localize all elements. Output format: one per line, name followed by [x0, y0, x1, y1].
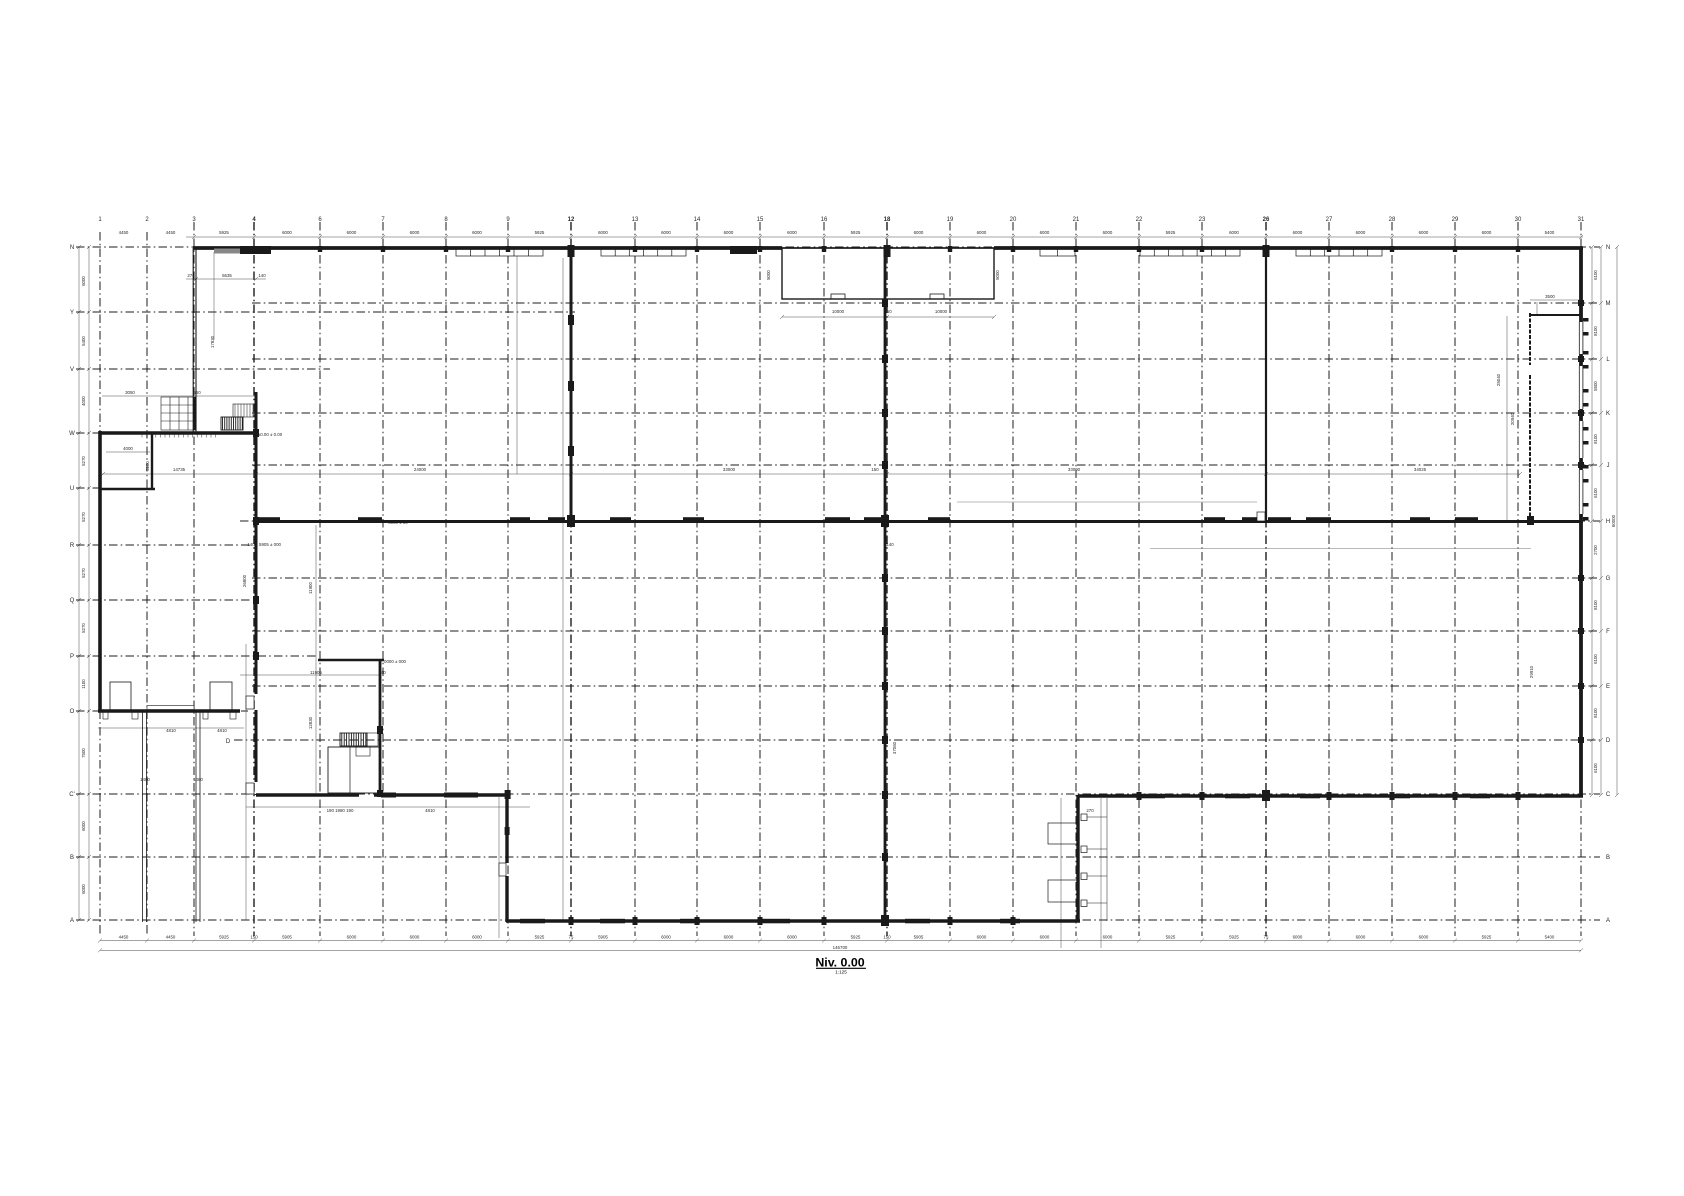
svg-text:E: E — [1606, 684, 1610, 690]
svg-text:4810: 4810 — [425, 808, 435, 813]
svg-text:22: 22 — [1136, 217, 1143, 223]
svg-text:150: 150 — [871, 467, 879, 472]
svg-text:1480: 1480 — [140, 777, 150, 782]
svg-text:6000: 6000 — [472, 230, 482, 235]
svg-text:6000: 6000 — [410, 230, 420, 235]
svg-text:5400: 5400 — [1545, 230, 1555, 235]
svg-text:4450: 4450 — [166, 230, 176, 235]
svg-text:7500: 7500 — [81, 748, 86, 758]
svg-text:29: 29 — [1452, 217, 1459, 223]
svg-text:26800: 26800 — [242, 574, 247, 587]
svg-text:6000: 6000 — [81, 821, 86, 831]
svg-text:1100: 1100 — [81, 679, 86, 689]
svg-text:75: 75 — [1264, 935, 1269, 940]
svg-text:28: 28 — [1389, 217, 1396, 223]
svg-text:5100: 5100 — [145, 461, 150, 471]
svg-text:11905: 11905 — [310, 670, 322, 675]
svg-text:5000: 5000 — [995, 270, 1000, 280]
svg-text:6000: 6000 — [1229, 230, 1239, 235]
svg-text:6000: 6000 — [1482, 230, 1492, 235]
svg-text:3050: 3050 — [125, 390, 135, 395]
svg-text:33000: 33000 — [723, 467, 736, 472]
svg-text:4810: 4810 — [217, 728, 227, 733]
svg-text:14: 14 — [694, 217, 701, 223]
svg-text:4450: 4450 — [119, 230, 129, 235]
svg-text:6000: 6000 — [410, 935, 420, 940]
svg-text:5905: 5905 — [914, 935, 924, 940]
svg-text:15: 15 — [757, 217, 764, 223]
svg-text:6000: 6000 — [1040, 230, 1050, 235]
svg-text:D: D — [226, 739, 231, 745]
svg-text:C': C' — [69, 792, 74, 798]
svg-text:1480: 1480 — [193, 777, 203, 782]
svg-text:Q: Q — [70, 598, 75, 604]
svg-text:N: N — [1606, 245, 1610, 251]
svg-text:8100: 8100 — [1593, 708, 1598, 718]
svg-text:18: 18 — [884, 217, 891, 223]
svg-text:N: N — [70, 245, 74, 251]
svg-text:6000: 6000 — [914, 230, 924, 235]
svg-text:270: 270 — [1086, 808, 1094, 813]
svg-text:6100: 6100 — [1593, 270, 1598, 280]
svg-text:5270: 5270 — [81, 512, 86, 522]
svg-text:6000: 6000 — [347, 230, 357, 235]
svg-text:13: 13 — [632, 217, 639, 223]
svg-text:2700: 2700 — [1593, 545, 1598, 555]
svg-text:6000: 6000 — [1103, 230, 1113, 235]
svg-text:4000: 4000 — [81, 396, 86, 406]
svg-text:23: 23 — [1199, 217, 1206, 223]
svg-text:5925: 5925 — [851, 935, 861, 940]
svg-text:60000: 60000 — [1611, 514, 1616, 527]
svg-text:4450: 4450 — [166, 935, 176, 940]
svg-text:M: M — [1606, 301, 1611, 307]
svg-text:6000: 6000 — [1356, 230, 1366, 235]
svg-text:146700: 146700 — [833, 945, 848, 950]
svg-text:5270: 5270 — [81, 568, 86, 578]
svg-text:6000: 6000 — [977, 935, 987, 940]
svg-text:6000: 6000 — [282, 230, 292, 235]
svg-text:G: G — [1606, 576, 1611, 582]
svg-text:20: 20 — [1010, 217, 1017, 223]
svg-text:R: R — [70, 543, 75, 549]
svg-text:6000: 6000 — [787, 935, 797, 940]
svg-text:J: J — [1607, 463, 1610, 469]
svg-text:K: K — [1606, 411, 1610, 417]
svg-text:6000: 6000 — [724, 230, 734, 235]
svg-text:D: D — [1606, 738, 1611, 744]
svg-text:17830: 17830 — [210, 335, 215, 348]
svg-text:660: 660 — [193, 390, 201, 395]
svg-text:A: A — [1606, 918, 1610, 924]
svg-text:5925: 5925 — [535, 230, 545, 235]
svg-text:6000: 6000 — [787, 230, 797, 235]
svg-text:5905: 5905 — [282, 935, 292, 940]
svg-text:4810: 4810 — [166, 728, 176, 733]
svg-text:5000: 5000 — [766, 270, 771, 280]
svg-text:5905 ± 000: 5905 ± 000 — [259, 542, 282, 547]
svg-text:10000: 10000 — [832, 309, 845, 314]
svg-text:12: 12 — [568, 217, 575, 223]
svg-text:6000: 6000 — [661, 230, 671, 235]
svg-text:F: F — [1606, 629, 1610, 635]
svg-text:6000: 6000 — [724, 935, 734, 940]
svg-text:1:125: 1:125 — [835, 970, 847, 975]
svg-text:Niv. 0.00: Niv. 0.00 — [815, 956, 864, 970]
svg-text:31: 31 — [1578, 217, 1585, 223]
svg-text:±0.00 ± 0.00: ±0.00 ± 0.00 — [258, 432, 283, 437]
svg-text:30: 30 — [1515, 217, 1522, 223]
svg-text:270: 270 — [187, 273, 195, 278]
svg-text:5400: 5400 — [81, 336, 86, 346]
svg-text:6000: 6000 — [598, 230, 608, 235]
svg-text:140: 140 — [258, 273, 266, 278]
svg-text:25040: 25040 — [1496, 373, 1501, 386]
svg-text:4450: 4450 — [119, 935, 129, 940]
svg-text:140: 140 — [247, 542, 255, 547]
svg-text:6000: 6000 — [977, 230, 987, 235]
svg-text:P: P — [70, 654, 74, 660]
svg-text:6100: 6100 — [1593, 763, 1598, 773]
svg-text:150: 150 — [883, 935, 891, 940]
svg-text:W: W — [69, 431, 75, 437]
svg-text:5905: 5905 — [598, 935, 608, 940]
svg-text:20940: 20940 — [1510, 412, 1515, 425]
svg-text:B: B — [70, 855, 74, 861]
svg-text:6100: 6100 — [1593, 654, 1598, 664]
svg-text:5635: 5635 — [222, 273, 232, 278]
svg-text:5925: 5925 — [219, 230, 229, 235]
svg-text:C: C — [1606, 792, 1611, 798]
svg-text:B: B — [1606, 855, 1610, 861]
svg-text:6000: 6000 — [472, 935, 482, 940]
svg-text:5925: 5925 — [851, 230, 861, 235]
svg-text:5400: 5400 — [1545, 935, 1555, 940]
svg-text:5925: 5925 — [1482, 935, 1492, 940]
svg-text:5925: 5925 — [1166, 230, 1176, 235]
svg-text:33000: 33000 — [1068, 467, 1081, 472]
svg-text:6000: 6000 — [1356, 935, 1366, 940]
svg-text:6000: 6000 — [1103, 935, 1113, 940]
svg-text:3500: 3500 — [1545, 294, 1555, 299]
svg-text:6000: 6000 — [1419, 230, 1429, 235]
svg-text:8100: 8100 — [1593, 600, 1598, 610]
svg-text:0000 ± 000: 0000 ± 000 — [384, 659, 407, 664]
svg-text:16: 16 — [821, 217, 828, 223]
svg-text:4000: 4000 — [123, 446, 133, 451]
svg-text:24000: 24000 — [414, 467, 427, 472]
svg-text:6000: 6000 — [81, 276, 86, 286]
svg-text:8100: 8100 — [1593, 434, 1598, 444]
svg-text:27: 27 — [1326, 217, 1333, 223]
svg-text:8100: 8100 — [1593, 326, 1598, 336]
svg-text:75: 75 — [569, 935, 574, 940]
svg-text:5270: 5270 — [81, 456, 86, 466]
svg-text:5925: 5925 — [219, 935, 229, 940]
svg-text:Y: Y — [70, 310, 74, 316]
svg-text:H: H — [1606, 519, 1610, 525]
svg-text:14735: 14735 — [173, 467, 186, 472]
svg-text:O: O — [70, 709, 75, 715]
svg-text:12830: 12830 — [308, 716, 313, 729]
svg-text:10000: 10000 — [935, 309, 948, 314]
svg-text:37060: 37060 — [892, 741, 897, 754]
svg-text:150: 150 — [250, 935, 258, 940]
svg-text:5500: 5500 — [1593, 381, 1598, 391]
svg-text:19: 19 — [947, 217, 954, 223]
svg-text:6000: 6000 — [347, 935, 357, 940]
svg-text:6000: 6000 — [81, 884, 86, 894]
svg-text:6100: 6100 — [1593, 488, 1598, 498]
svg-text:11900: 11900 — [308, 582, 313, 594]
svg-text:140: 140 — [886, 542, 894, 547]
svg-text:34025: 34025 — [1414, 467, 1427, 472]
svg-text:A: A — [70, 918, 74, 924]
svg-text:6000: 6000 — [1293, 230, 1303, 235]
svg-text:6000: 6000 — [1419, 935, 1429, 940]
svg-text:5270: 5270 — [81, 623, 86, 633]
svg-text:6000: 6000 — [1293, 935, 1303, 940]
svg-text:5925: 5925 — [535, 935, 545, 940]
svg-text:5925: 5925 — [1229, 935, 1239, 940]
svg-text:5925: 5925 — [1166, 935, 1176, 940]
svg-text:6000: 6000 — [1040, 935, 1050, 940]
svg-text:26: 26 — [1263, 217, 1270, 223]
svg-text:21: 21 — [1073, 217, 1080, 223]
svg-text:V: V — [70, 367, 74, 373]
svg-text:190 1980 190: 190 1980 190 — [327, 808, 354, 813]
svg-text:6000: 6000 — [661, 935, 671, 940]
svg-text:U: U — [70, 486, 74, 492]
svg-text:29910: 29910 — [1529, 665, 1534, 678]
